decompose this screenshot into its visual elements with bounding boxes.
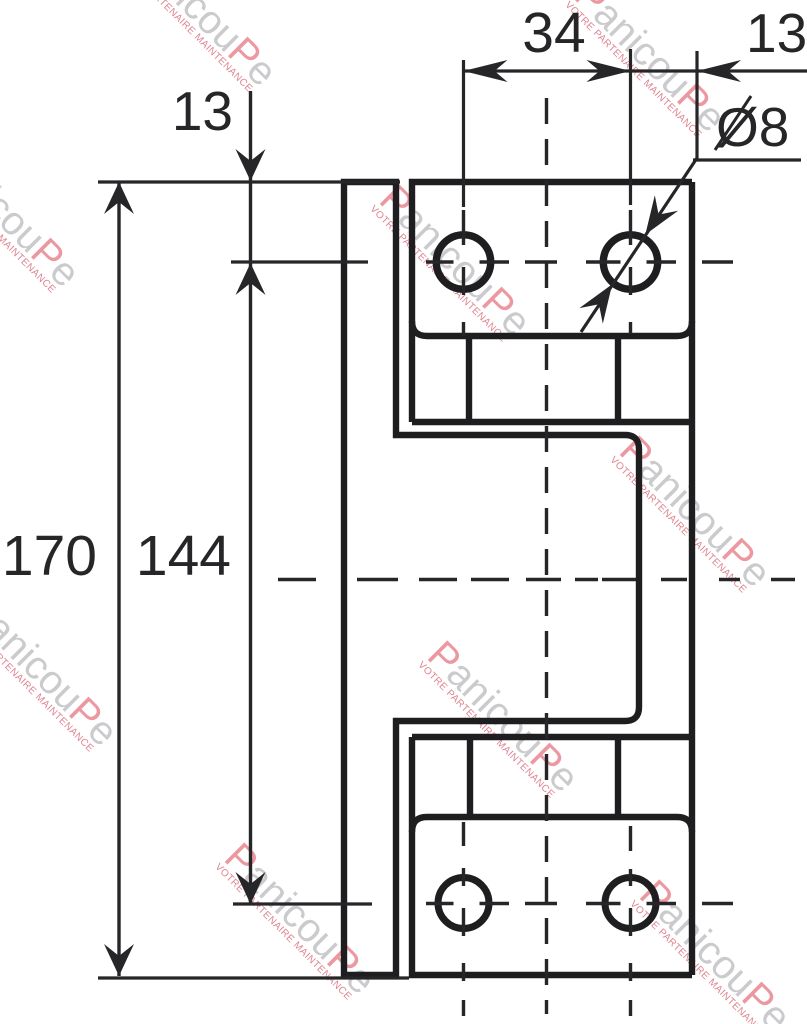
svg-text:34: 34 bbox=[522, 1, 585, 65]
svg-text:13: 13 bbox=[172, 80, 233, 142]
svg-text:170: 170 bbox=[2, 524, 97, 588]
svg-text:Ø8: Ø8 bbox=[716, 96, 789, 158]
svg-text:144: 144 bbox=[136, 524, 231, 588]
svg-text:13: 13 bbox=[746, 2, 807, 64]
